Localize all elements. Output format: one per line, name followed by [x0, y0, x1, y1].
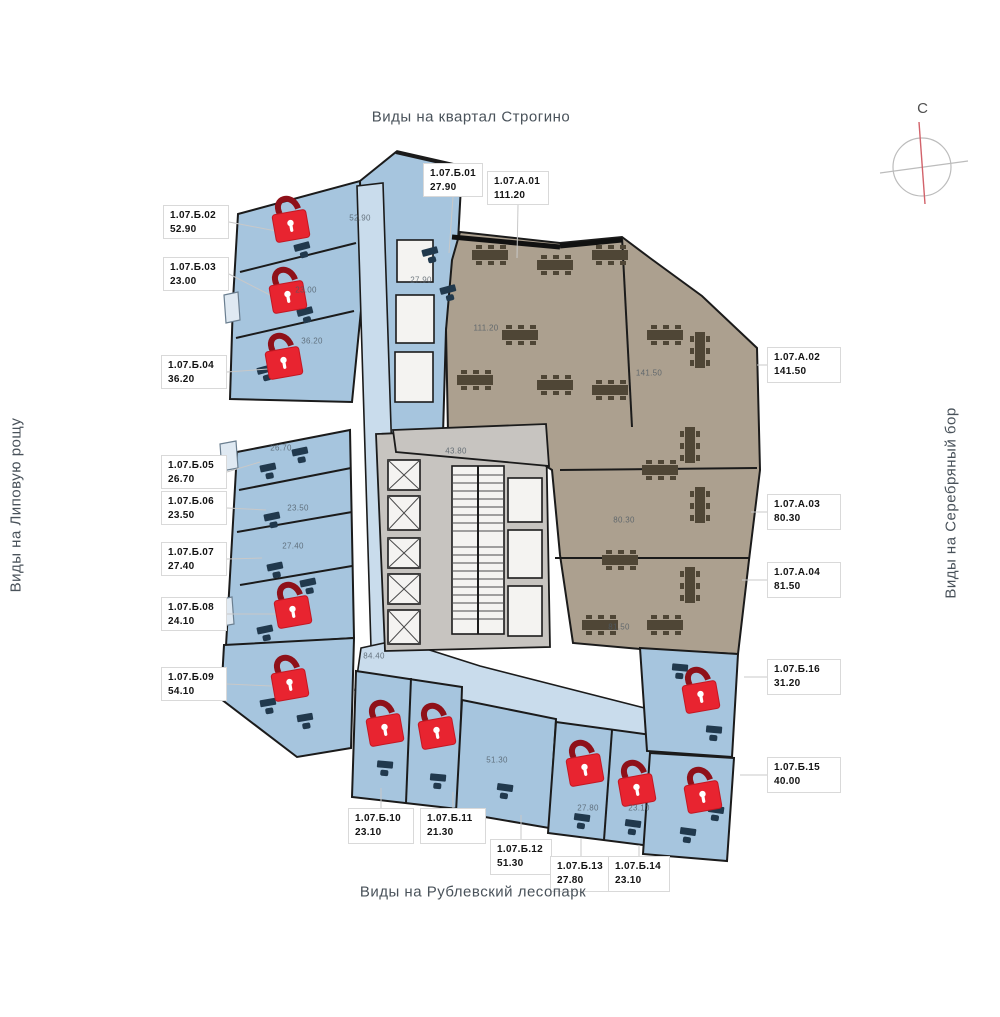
unit-area: 36.20 [168, 373, 220, 387]
unit-area: 80.30 [774, 512, 834, 526]
unit-label-1.07.А.02[interactable]: 1.07.А.02141.50 [767, 347, 841, 383]
unit-area: 52.90 [170, 223, 222, 237]
unit-label-1.07.А.01[interactable]: 1.07.А.01111.20 [487, 171, 549, 205]
callout-line [229, 222, 276, 231]
unit-label-1.07.Б.12[interactable]: 1.07.Б.1251.30 [490, 839, 552, 875]
callout-line [229, 274, 272, 296]
lock-icon [415, 703, 456, 750]
plan-area-label: 27.80 [577, 804, 599, 813]
unit-label-1.07.Б.15[interactable]: 1.07.Б.1540.00 [767, 757, 841, 793]
unit-label-1.07.А.03[interactable]: 1.07.А.0380.30 [767, 494, 841, 530]
unit-label-1.07.Б.08[interactable]: 1.07.Б.0824.10 [161, 597, 227, 631]
unit-area: 24.10 [168, 615, 220, 629]
plan-area-label: 84.40 [363, 652, 385, 661]
unit-label-1.07.Б.16[interactable]: 1.07.Б.1631.20 [767, 659, 841, 695]
callout-line [227, 558, 262, 559]
lock-icon [268, 655, 309, 702]
callout-line [517, 205, 518, 258]
view-title-right: Виды на Серебряный бор [943, 407, 960, 598]
plan-area-label: 80.30 [613, 516, 635, 525]
plan-area-label: 36.20 [301, 337, 323, 346]
lock-icon [269, 196, 310, 243]
lock-icon [271, 582, 312, 629]
unit-label-1.07.Б.09[interactable]: 1.07.Б.0954.10 [161, 667, 227, 701]
plan-area-label: 26.70 [270, 444, 292, 453]
lock-icon [679, 667, 720, 714]
unit-area: 141.50 [774, 365, 834, 379]
plan-area-label: 52.90 [349, 214, 371, 223]
unit-area: 111.20 [494, 189, 542, 203]
unit-id: 1.07.Б.09 [168, 671, 220, 685]
view-title-bottom: Виды на Рублевский лесопарк [360, 884, 586, 901]
plan-area-label: 43.80 [445, 447, 467, 456]
unit-area: 23.00 [170, 275, 222, 289]
unit-id: 1.07.Б.13 [557, 860, 605, 874]
floor-plan-page: Виды на квартал Строгино Виды на Рублевс… [0, 0, 1000, 1017]
plan-area-label: 23.10 [628, 804, 650, 813]
plan-area-label: 27.90 [410, 276, 432, 285]
unit-area: 23.10 [615, 874, 663, 888]
plan-area-label: 23.50 [287, 504, 309, 513]
unit-label-1.07.Б.06[interactable]: 1.07.Б.0623.50 [161, 491, 227, 525]
unit-label-1.07.Б.11[interactable]: 1.07.Б.1121.30 [420, 808, 486, 844]
compass: С [878, 100, 970, 210]
unit-area: 51.30 [497, 857, 545, 871]
unit-label-1.07.Б.14[interactable]: 1.07.Б.1423.10 [608, 856, 670, 892]
unit-id: 1.07.Б.04 [168, 359, 220, 373]
unit-area: 40.00 [774, 775, 834, 789]
plan-area-label: 51.30 [486, 756, 508, 765]
callout-line [227, 508, 266, 510]
unit-label-1.07.Б.10[interactable]: 1.07.Б.1023.10 [348, 808, 414, 844]
unit-area: 31.20 [774, 677, 834, 691]
unit-label-1.07.Б.03[interactable]: 1.07.Б.0323.00 [163, 257, 229, 291]
view-title-left: Виды на Липовую рощу [8, 418, 25, 593]
lock-icon [681, 767, 722, 814]
unit-id: 1.07.А.01 [494, 175, 542, 189]
callout-line [449, 197, 453, 253]
callout-line [227, 462, 260, 472]
unit-label-1.07.Б.02[interactable]: 1.07.Б.0252.90 [163, 205, 229, 239]
lock-icon [363, 700, 404, 747]
unit-area: 23.10 [355, 826, 407, 840]
unit-id: 1.07.Б.16 [774, 663, 834, 677]
compass-rose-icon [878, 100, 970, 210]
unit-area: 27.90 [430, 181, 476, 195]
lock-icon [563, 740, 604, 787]
unit-label-1.07.Б.01[interactable]: 1.07.Б.0127.90 [423, 163, 483, 197]
unit-id: 1.07.Б.07 [168, 546, 220, 560]
plan-area-label: 111.20 [473, 324, 498, 333]
unit-id: 1.07.Б.12 [497, 843, 545, 857]
callout-line [227, 369, 268, 372]
unit-id: 1.07.А.04 [774, 566, 834, 580]
unit-area: 21.30 [427, 826, 479, 840]
unit-label-1.07.Б.07[interactable]: 1.07.Б.0727.40 [161, 542, 227, 576]
lock-icon [615, 760, 656, 807]
plan-area-label: 23.00 [295, 286, 317, 295]
unit-area: 54.10 [168, 685, 220, 699]
unit-label-1.07.Б.05[interactable]: 1.07.Б.0526.70 [161, 455, 227, 489]
unit-label-1.07.А.04[interactable]: 1.07.А.0481.50 [767, 562, 841, 598]
view-title-top: Виды на квартал Строгино [372, 109, 570, 126]
unit-id: 1.07.Б.05 [168, 459, 220, 473]
unit-id: 1.07.Б.06 [168, 495, 220, 509]
unit-id: 1.07.Б.11 [427, 812, 479, 826]
unit-id: 1.07.Б.01 [430, 167, 476, 181]
unit-id: 1.07.Б.08 [168, 601, 220, 615]
unit-area: 26.70 [168, 473, 220, 487]
callout-line [227, 684, 272, 686]
unit-area: 27.40 [168, 560, 220, 574]
plan-area-label: 27.40 [282, 542, 304, 551]
unit-label-1.07.Б.04[interactable]: 1.07.Б.0436.20 [161, 355, 227, 389]
unit-id: 1.07.Б.14 [615, 860, 663, 874]
unit-id: 1.07.А.03 [774, 498, 834, 512]
unit-id: 1.07.Б.02 [170, 209, 222, 223]
lock-icon [262, 333, 303, 380]
unit-area: 81.50 [774, 580, 834, 594]
plan-area-label: 81.50 [608, 623, 630, 632]
unit-id: 1.07.А.02 [774, 351, 834, 365]
unit-id: 1.07.Б.15 [774, 761, 834, 775]
unit-id: 1.07.Б.10 [355, 812, 407, 826]
unit-id: 1.07.Б.03 [170, 261, 222, 275]
plan-area-label: 141.50 [636, 369, 662, 378]
unit-area: 23.50 [168, 509, 220, 523]
